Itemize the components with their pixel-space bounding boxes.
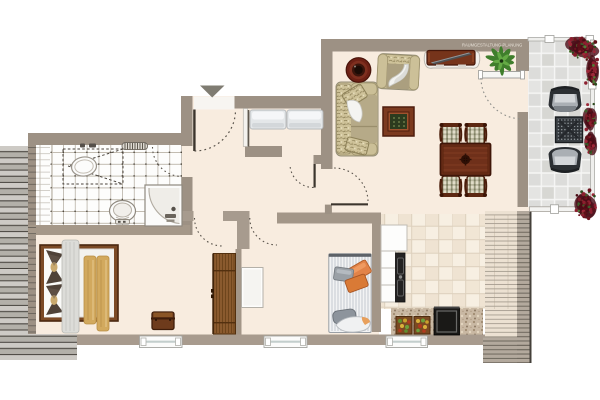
svg-text:RAUMGESTALTUNG-PLANUNG: RAUMGESTALTUNG-PLANUNG: [462, 43, 522, 48]
